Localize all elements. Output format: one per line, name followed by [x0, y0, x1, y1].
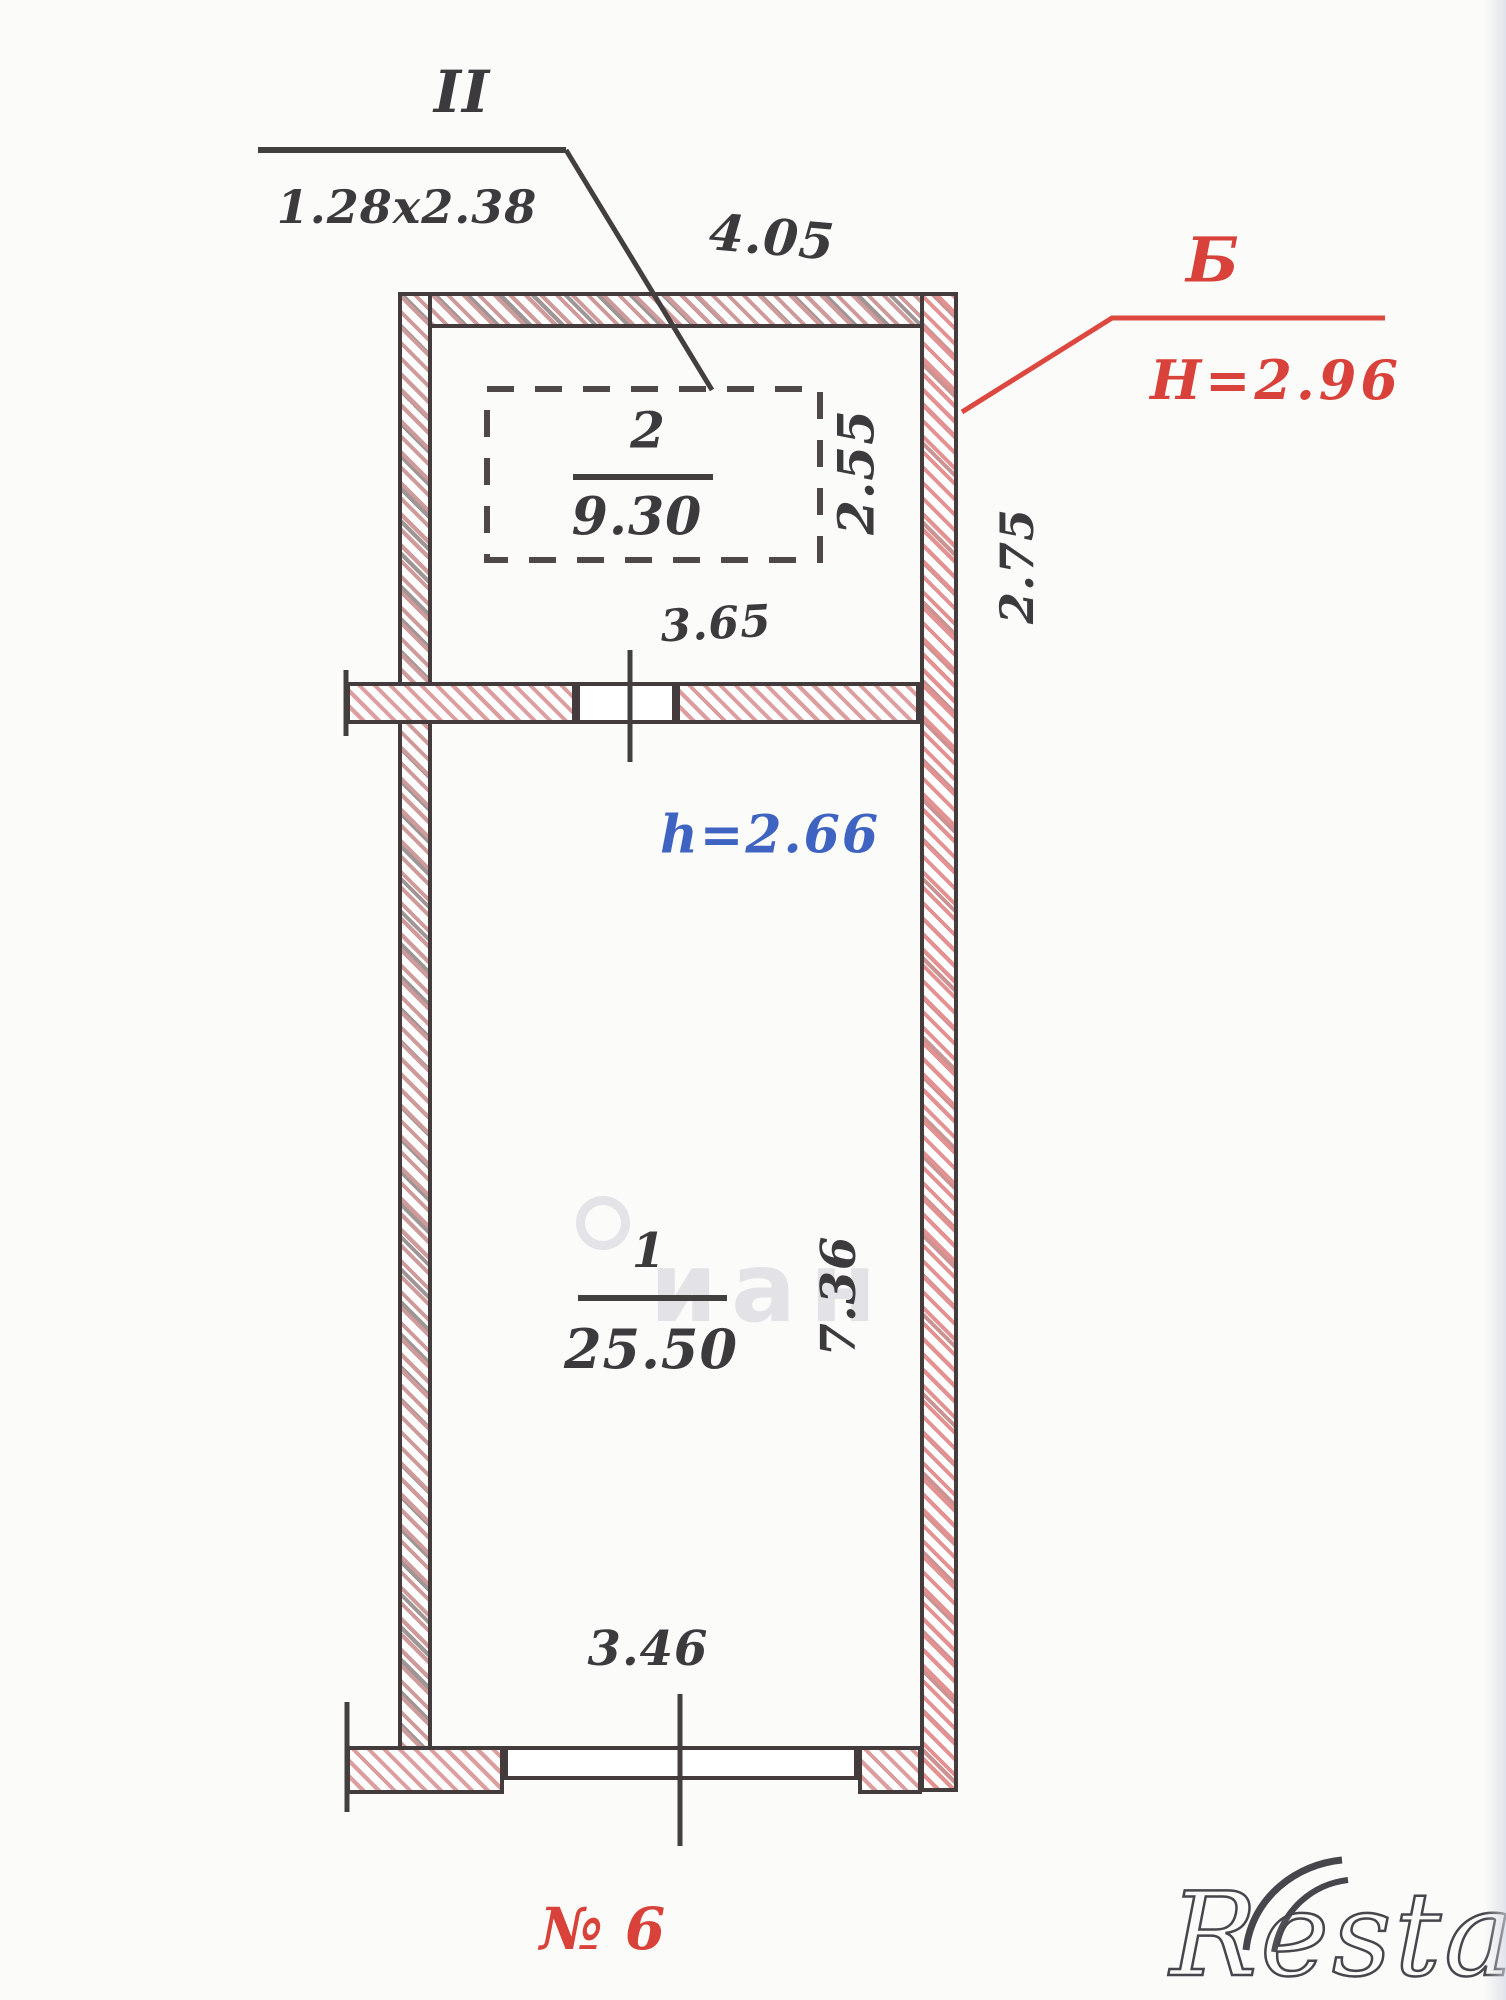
dim-top-width: 4.05: [707, 202, 837, 272]
ceiling-height-label: h=2.66: [660, 805, 880, 866]
window-mark-label: II: [434, 58, 490, 126]
dim-room2-depth: 2.55: [827, 409, 886, 535]
dim-room2-width: 3.65: [659, 596, 773, 653]
window-mark-leader-line: [566, 150, 712, 390]
partition-wall-right-segment: [676, 682, 920, 724]
room2-area: 9.30: [572, 487, 703, 548]
dim-room1-width: 3.46: [588, 1621, 709, 1677]
restate-watermark: Restate: [1170, 1878, 1506, 1994]
top-wall: [398, 292, 958, 328]
right-wall: [920, 292, 958, 1792]
partition-wall-left-segment: [346, 682, 576, 724]
unit-number-label: № 6: [540, 1895, 667, 1963]
dim-room1-depth: 7.36: [811, 1236, 867, 1357]
room1-area: 25.50: [564, 1317, 738, 1381]
entrance-opening: [504, 1746, 858, 1780]
floor-plan-page: иан II 1.28x2.38 4.05 Б H=2.96 2 9.30 2: [0, 0, 1506, 2000]
section-mark-letter: Б: [1186, 224, 1240, 297]
left-wall: [398, 292, 432, 1792]
window-mark-dimensions: 1.28x2.38: [277, 180, 538, 234]
bottom-wall-right-segment: [858, 1746, 922, 1794]
room2-number: 2: [630, 401, 666, 460]
room1-number: 1: [632, 1223, 666, 1279]
dim-side-depth: 2.75: [990, 508, 1044, 624]
section-mark-height: H=2.96: [1150, 348, 1402, 412]
cian-watermark-pin-icon: [576, 1196, 630, 1250]
bottom-wall-left-segment: [346, 1746, 504, 1794]
scan-edge-streak: [1484, 0, 1506, 2000]
partition-door-opening: [576, 682, 676, 724]
